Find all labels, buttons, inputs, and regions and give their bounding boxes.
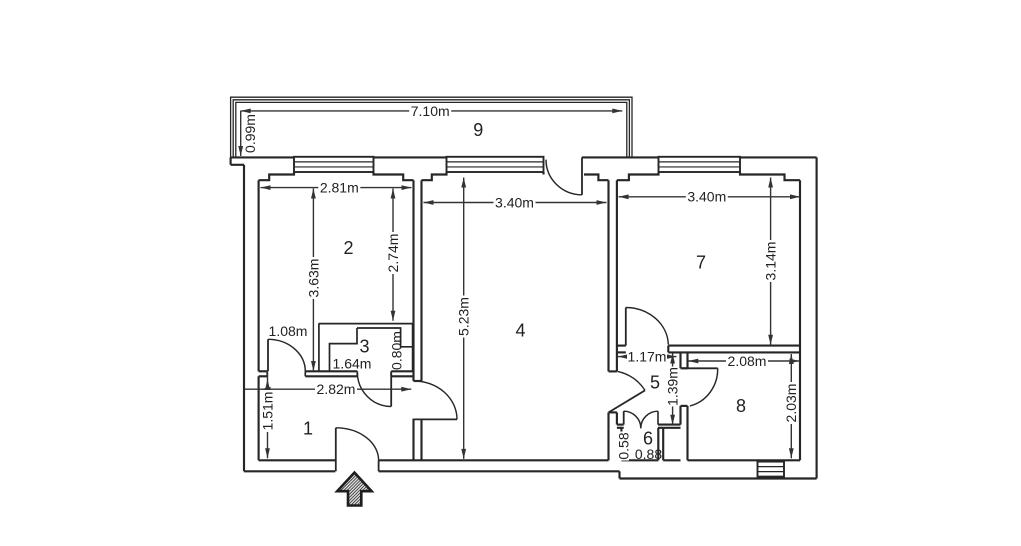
svg-text:8: 8	[736, 396, 746, 416]
svg-text:3.63m: 3.63m	[305, 259, 321, 298]
svg-text:9: 9	[473, 120, 483, 140]
svg-text:0.88: 0.88	[635, 446, 662, 462]
svg-text:2.82m: 2.82m	[317, 381, 356, 397]
svg-text:2.08m: 2.08m	[728, 353, 767, 369]
svg-text:0.99m: 0.99m	[242, 114, 258, 153]
svg-text:1.64m: 1.64m	[333, 356, 372, 372]
svg-text:2.81m: 2.81m	[320, 180, 359, 196]
svg-text:5.23m: 5.23m	[456, 297, 472, 336]
svg-text:4: 4	[515, 320, 525, 340]
svg-text:3: 3	[359, 337, 369, 357]
svg-text:3.40m: 3.40m	[495, 194, 534, 210]
svg-text:1.39m: 1.39m	[665, 367, 681, 406]
svg-text:2.74m: 2.74m	[385, 234, 401, 273]
svg-text:3.14m: 3.14m	[763, 242, 779, 281]
svg-text:5: 5	[650, 372, 660, 392]
svg-text:6: 6	[643, 428, 653, 448]
svg-text:2.03m: 2.03m	[783, 384, 799, 423]
svg-text:2: 2	[343, 238, 353, 258]
svg-text:3.40m: 3.40m	[687, 189, 726, 205]
svg-text:1.08m: 1.08m	[269, 323, 308, 339]
svg-text:0.58: 0.58	[615, 432, 631, 459]
svg-text:1.17m: 1.17m	[628, 349, 667, 365]
svg-text:7: 7	[696, 252, 706, 272]
svg-text:1: 1	[303, 418, 313, 438]
svg-text:1.51m: 1.51m	[259, 392, 275, 431]
svg-text:7.10m: 7.10m	[411, 103, 450, 119]
svg-text:0.80m: 0.80m	[389, 331, 405, 370]
